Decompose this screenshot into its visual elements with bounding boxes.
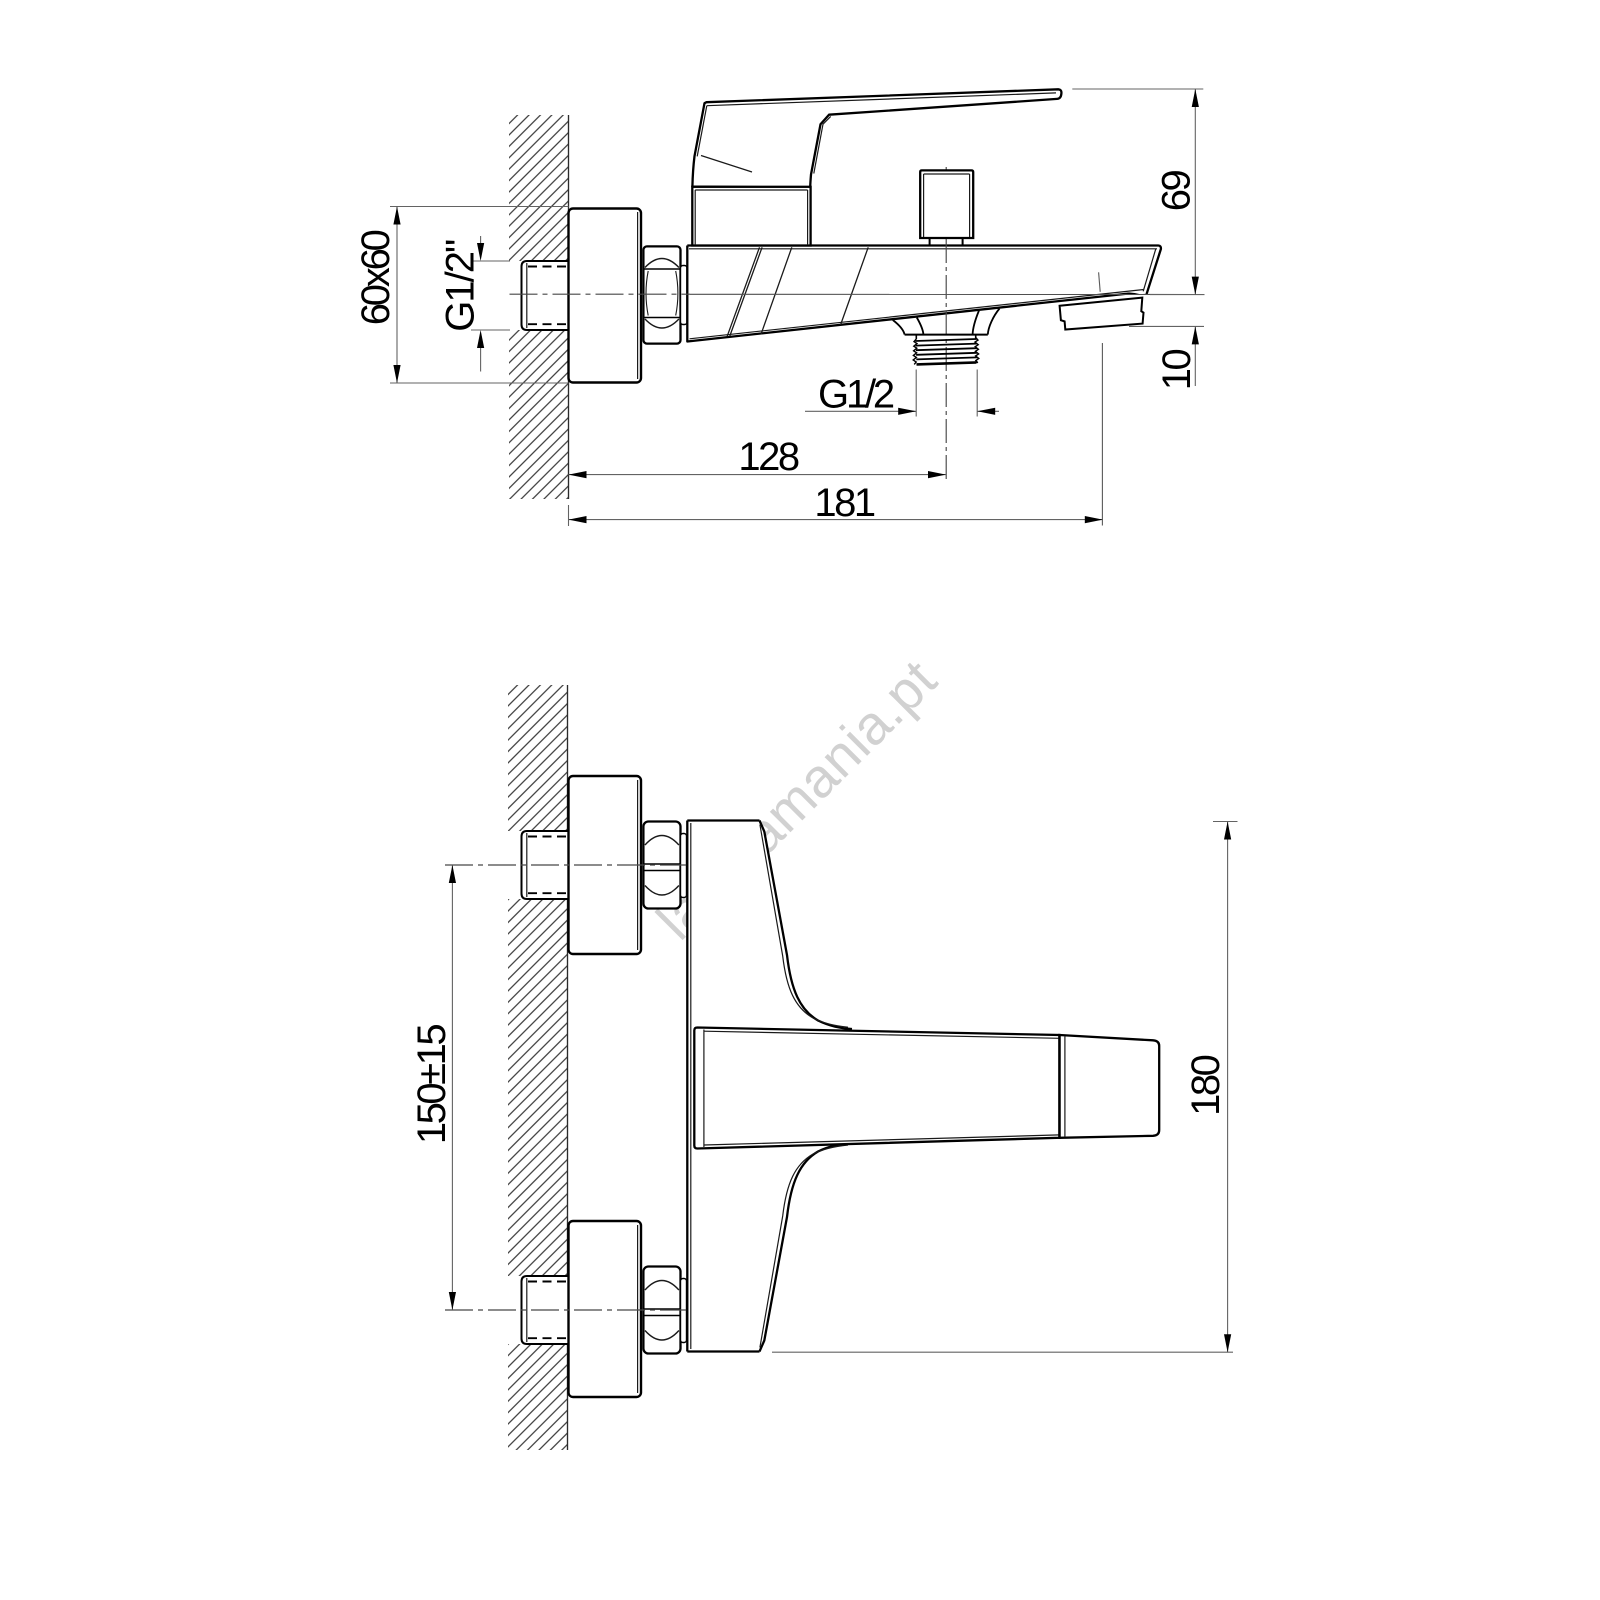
svg-text:G1/2: G1/2 — [818, 373, 894, 417]
svg-text:G1/2": G1/2" — [438, 240, 482, 332]
svg-text:128: 128 — [738, 435, 798, 479]
svg-text:181: 181 — [814, 481, 874, 525]
svg-text:150±15: 150±15 — [410, 1025, 454, 1144]
svg-text:10: 10 — [1155, 350, 1199, 391]
svg-text:180: 180 — [1184, 1055, 1228, 1115]
svg-text:69: 69 — [1155, 171, 1199, 212]
svg-text:60x60: 60x60 — [354, 230, 398, 325]
